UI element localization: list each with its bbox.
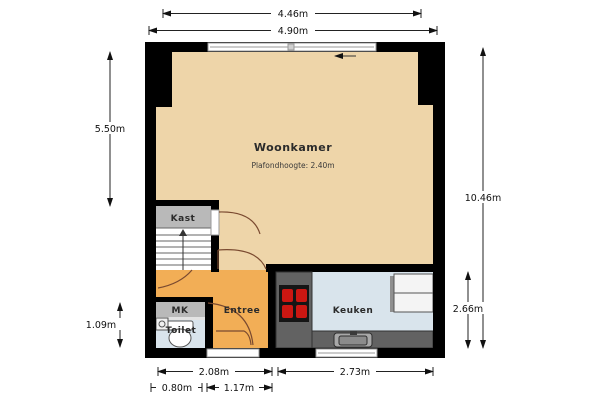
sink-basin bbox=[339, 336, 367, 345]
cooktop bbox=[279, 285, 309, 322]
room-kast-label: Kast bbox=[171, 214, 196, 224]
burner-icon bbox=[296, 289, 307, 302]
ceiling-height-note: Plafondhoogte: 2.40m bbox=[251, 161, 334, 170]
dim-bottom-hall-label: 2.08m bbox=[199, 367, 229, 378]
wall-kast-top bbox=[156, 200, 219, 206]
appliance-bottom bbox=[394, 293, 433, 312]
wall-mk-top bbox=[156, 297, 213, 302]
dim-bottom-entree-label: 1.17m bbox=[224, 383, 254, 394]
dim-bottom-door: 0.80m bbox=[151, 382, 202, 394]
floor-plan-canvas: Woonkamer Plafondhoogte: 2.40m Kast MK T… bbox=[0, 0, 600, 400]
appliance-top bbox=[394, 274, 433, 293]
dim-bottom-hall: 2.08m bbox=[158, 366, 272, 378]
dim-top-outer: 4.90m bbox=[149, 25, 437, 37]
dim-bottom-door-label: 0.80m bbox=[162, 383, 192, 394]
dim-left-living: 5.50m bbox=[88, 52, 132, 206]
dim-bottom-entree: 1.17m bbox=[207, 382, 272, 394]
wall-left-top-block bbox=[145, 42, 172, 107]
dim-top-inner: 4.46m bbox=[163, 8, 421, 20]
floor-plan: Woonkamer Plafondhoogte: 2.40m Kast MK T… bbox=[0, 0, 600, 400]
dim-bottom-kitchen: 2.73m bbox=[278, 366, 433, 378]
wall-toilet-right bbox=[205, 297, 213, 348]
burner-icon bbox=[296, 305, 307, 318]
dim-right-total-label: 10.46m bbox=[465, 193, 501, 204]
burner-icon bbox=[282, 289, 293, 302]
staircase bbox=[156, 228, 211, 270]
room-toilet-label: Toilet bbox=[166, 326, 197, 336]
wall-right-top-block bbox=[418, 42, 445, 105]
room-entree-label: Entree bbox=[224, 306, 261, 316]
kast-doorway bbox=[211, 210, 219, 235]
dim-top-inner-label: 4.46m bbox=[278, 9, 308, 20]
dim-top-outer-label: 4.90m bbox=[278, 26, 308, 37]
dim-left-toilet-label: 1.09m bbox=[86, 320, 116, 331]
dim-left-living-label: 5.50m bbox=[95, 124, 125, 135]
sink-faucet bbox=[350, 331, 357, 335]
window-top-mullion bbox=[288, 44, 294, 50]
wall-entree-keuken bbox=[268, 268, 276, 348]
kitchen-sink bbox=[334, 331, 372, 347]
dim-right-kitchen-label: 2.66m bbox=[453, 304, 483, 315]
kitchen-appliance bbox=[390, 274, 433, 312]
wall-bottom bbox=[145, 348, 445, 358]
dim-left-toilet: 1.09m bbox=[82, 303, 122, 347]
burner-icon bbox=[282, 305, 293, 318]
wall-woonkamer-keuken bbox=[266, 264, 433, 272]
room-woonkamer-label: Woonkamer bbox=[254, 141, 332, 154]
room-keuken-label: Keuken bbox=[333, 306, 374, 316]
dim-bottom-kitchen-label: 2.73m bbox=[340, 367, 370, 378]
front-door-threshold bbox=[207, 349, 259, 357]
room-mk-label: MK bbox=[172, 306, 189, 316]
window-kitchen bbox=[316, 349, 377, 357]
